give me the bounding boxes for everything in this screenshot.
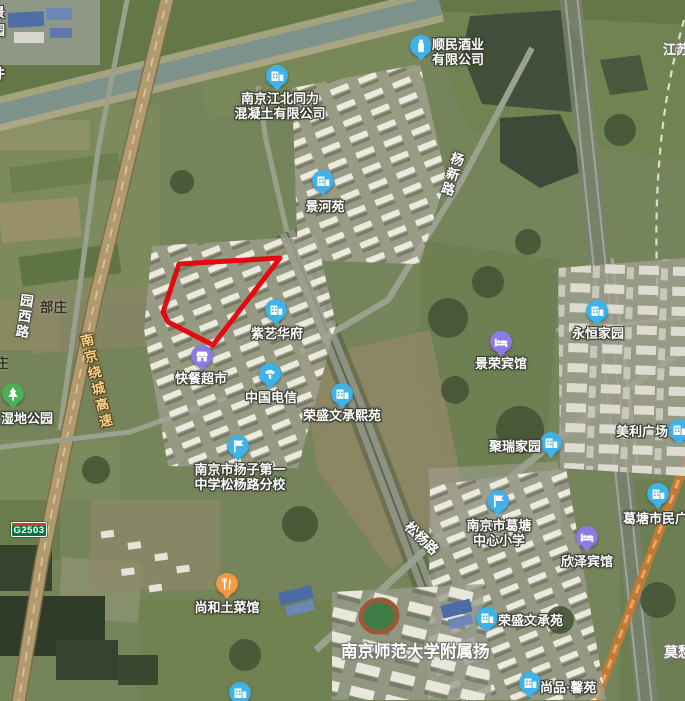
satellite-map[interactable]: G2503 顺民酒业 有限公司南京江北同力 混凝土有限公司景河苑紫艺华府快餐超市… bbox=[0, 0, 685, 701]
liquor-company-icon bbox=[410, 35, 432, 57]
building-icon bbox=[586, 300, 608, 322]
zhuang-edge-partial-label: 庄 bbox=[0, 352, 9, 372]
mochou-edge-partial-label: 莫愁 bbox=[664, 642, 685, 662]
yangxin-road-label: 杨新路 bbox=[434, 149, 467, 199]
telecom-icon bbox=[259, 363, 281, 385]
jingrong-hotel-label: 景荣宾馆 bbox=[475, 356, 527, 371]
hotel-bed-icon bbox=[490, 331, 512, 353]
building-icon bbox=[647, 483, 669, 505]
kuaican-supermarket-label: 快餐超市 bbox=[175, 371, 227, 386]
shanghe-restaurant-label: 尚和土菜馆 bbox=[194, 600, 259, 615]
yangzi-no1-middle-school-songyang-branch-label: 南京市扬子第一 中学松杨路分校 bbox=[194, 462, 285, 493]
edge-partial-label-0: 景 bbox=[0, 2, 5, 21]
building-icon bbox=[331, 383, 353, 405]
edge-partial-label-2: 件 bbox=[0, 63, 5, 82]
building-icon bbox=[265, 299, 287, 321]
jurui-jiayuan-label: 聚瑞家园 bbox=[489, 439, 541, 454]
wetland-park-label: 湿地公园 bbox=[1, 411, 53, 426]
nanjing-ring-expressway-label: 南京绕城高速 bbox=[74, 332, 116, 433]
getang-central-primary-school-label: 南京市葛塘 中心小学 bbox=[466, 518, 531, 549]
yongheng-jiayuan-label: 永恒家园 bbox=[572, 326, 624, 341]
building-icon bbox=[229, 682, 251, 701]
buzhuang-label: 部庄 bbox=[40, 296, 67, 316]
map-label-layer: G2503 顺民酒业 有限公司南京江北同力 混凝土有限公司景河苑紫艺华府快餐超市… bbox=[0, 0, 685, 701]
shield-code: G2503 bbox=[12, 526, 46, 536]
nanjing-normal-univ-affiliated-yang-label: 南京师范大学附属扬 bbox=[341, 638, 490, 662]
edge-partial-label-1: 园 bbox=[0, 20, 5, 39]
hotel-bed-icon bbox=[576, 526, 598, 548]
school-flag-icon bbox=[227, 435, 249, 457]
expressway-shield-g2503: G2503 bbox=[11, 522, 47, 537]
xinze-hotel-label: 欣泽宾馆 bbox=[561, 554, 613, 569]
tongli-concrete-company-label: 南京江北同力 混凝土有限公司 bbox=[234, 91, 325, 122]
shunmin-liquor-company-label: 顺民酒业 有限公司 bbox=[432, 37, 484, 68]
getang-civic-plaza-label: 葛塘市民广场 bbox=[623, 511, 685, 526]
jingheyuan-label: 景河苑 bbox=[305, 199, 344, 214]
building-icon bbox=[266, 65, 288, 87]
songyang-road-label: 松杨路 bbox=[401, 516, 444, 559]
ziyi-huafu-label: 紫艺华府 bbox=[251, 326, 303, 341]
restaurant-icon bbox=[216, 573, 238, 595]
yuanxi-road-label: 园西路 bbox=[10, 292, 36, 341]
building-icon bbox=[540, 432, 562, 454]
park-tree-icon bbox=[2, 383, 24, 405]
china-telecom-label: 中国电信 bbox=[245, 390, 297, 405]
building-icon bbox=[312, 170, 334, 192]
building-icon bbox=[668, 419, 685, 441]
school-flag-icon bbox=[487, 490, 509, 512]
meili-plaza-label: 美利广场 bbox=[616, 424, 668, 439]
building-icon bbox=[519, 672, 541, 694]
store-icon bbox=[191, 345, 213, 367]
rongsheng-wenchengyuan-label: 荣盛文承苑 bbox=[498, 613, 563, 628]
shangpin-xinyuan-label: 尚品·馨苑 bbox=[540, 680, 596, 695]
rongsheng-wencheng-xiyuan-label: 荣盛文承熙苑 bbox=[303, 408, 381, 423]
jiangsu-edge-partial-label: 江苏 bbox=[663, 39, 685, 58]
building-icon bbox=[476, 607, 498, 629]
